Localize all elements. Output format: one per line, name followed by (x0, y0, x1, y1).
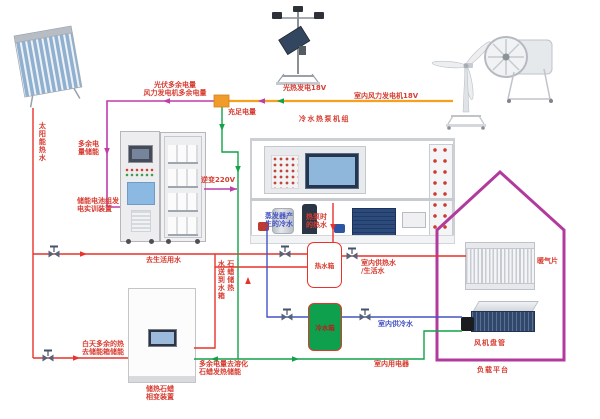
label-paraffin-device: 储热石蜡 相变装置 (146, 385, 174, 402)
label-column: 石蜡储热 (226, 260, 234, 300)
flow-arrow-icon (163, 98, 170, 104)
flow-arrow-icon (235, 166, 241, 173)
label-fan-coil: 风机盘管 (474, 339, 506, 347)
excess-power-lines (107, 101, 237, 207)
power-lines-green (194, 107, 462, 359)
junction-box-icon (214, 95, 229, 107)
label-line: /生活水 (361, 267, 396, 275)
flow-arrow-icon (230, 186, 237, 192)
wind-turbine (432, 40, 492, 130)
diagram-canvas: 热水箱 冷水箱 (0, 0, 600, 419)
valve-icon (347, 249, 358, 260)
flow-arrow-icon (245, 277, 251, 284)
label-indoor-wind-generation: 室内风力发电机18V (354, 92, 418, 100)
flow-arrow-icon (292, 356, 299, 362)
valve-icon (360, 310, 371, 321)
house-outline (437, 172, 564, 360)
flow-arrow-icon (104, 148, 110, 155)
sufficient-power-line (222, 107, 238, 359)
lamp-icon (314, 12, 324, 19)
label-load-platform: 负载平台 (477, 366, 509, 374)
lamp-icon (293, 6, 303, 12)
indoor-appliance-line (194, 331, 462, 359)
label-column: 水送到水箱 (217, 260, 225, 300)
label-line: 生的冷水 (265, 220, 293, 228)
label-line: 石蜡发热储能 (199, 368, 248, 376)
evaporator-cold-line (267, 228, 308, 317)
valve-icon (282, 310, 293, 321)
label-to-domestic-water: 去生活用水 (146, 256, 181, 264)
pv-tracker (272, 6, 324, 85)
valve-icon (43, 351, 54, 362)
label-radiator: 暖气片 (537, 257, 558, 265)
label-line: 量储能 (78, 148, 99, 156)
lamp-icon (272, 12, 282, 19)
label-battery-training-device: 储能电池组发 电实训装置 (77, 197, 119, 214)
label-solar-hot-water: 太阳能热水 (38, 122, 46, 162)
label-indoor-hot-water: 室内供热水 /生活水 (361, 259, 396, 276)
excess-to-storage-line (107, 101, 215, 207)
flow-arrow-icon (219, 124, 225, 131)
label-line: 去储能箱储能 (82, 348, 124, 356)
label-sufficient-power: 充足电量 (228, 108, 256, 116)
label-indoor-cold-water: 室内供冷水 (378, 320, 413, 328)
flow-arrow-icon (258, 98, 265, 104)
solar-collector (14, 26, 84, 108)
label-heat-pump-hot-water: 热泵时 的热水 (306, 213, 327, 230)
label-day-excess-heat: 白天多余的热 去储能箱储能 (82, 340, 124, 357)
paraffin-to-tank-line (194, 254, 307, 348)
flow-arrow-icon (330, 224, 336, 231)
label-excess-melts-paraffin: 多余电量去溶化 石蜡发热储能 (199, 360, 248, 377)
label-indoor-appliances: 室内用电器 (374, 360, 409, 368)
label-pv-generation: 光热发电18V (283, 84, 326, 92)
flow-arrow-icon (80, 251, 87, 257)
label-paraffin-heat-to-tank: 水送到水箱 石蜡储热 (217, 260, 235, 300)
label-line: 相变装置 (146, 393, 174, 401)
label-inverter-220v: 逆变220V (201, 176, 235, 184)
label-line: 风力发电机多余电量 (134, 89, 216, 97)
flow-arrow-icon (277, 98, 284, 104)
label-line: 的热水 (306, 221, 327, 229)
label-heat-pump-unit: 冷水热泵机组 (299, 115, 350, 123)
valve-icon (280, 247, 291, 258)
label-line: 电实训装置 (77, 205, 119, 213)
label-evaporator-cold-water: 蒸发器产 生的冷水 (265, 212, 293, 229)
flow-arrow-icon (73, 355, 80, 361)
label-excess-storage: 多余电 量储能 (78, 140, 99, 157)
wind-tunnel-fan (485, 37, 553, 103)
valve-icon (49, 247, 60, 258)
label-pv-wind-excess: 光伏多余电量 风力发电机多余电量 (134, 81, 216, 98)
